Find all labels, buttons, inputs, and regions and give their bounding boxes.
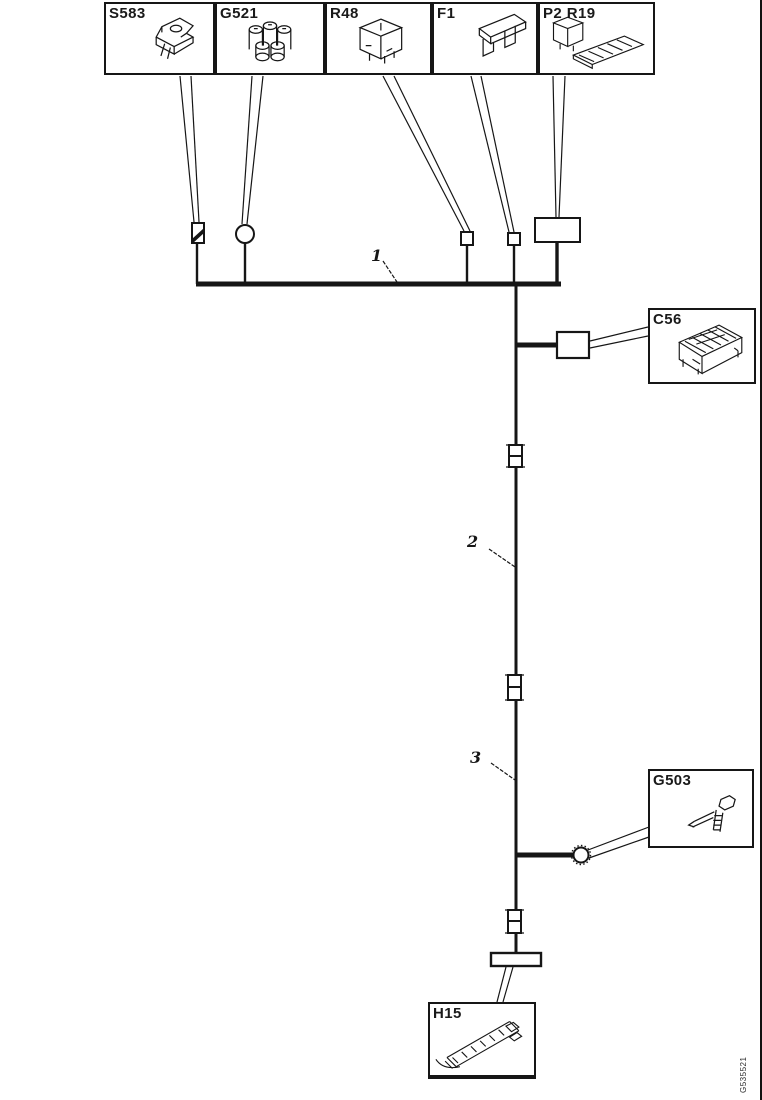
f1-illustration bbox=[434, 4, 536, 73]
component-box-f1: F1 bbox=[432, 2, 538, 75]
square-connector-symbol bbox=[461, 232, 473, 245]
segment-label-3: 3 bbox=[470, 748, 481, 767]
component-box-g521: G521 bbox=[215, 2, 325, 75]
segment-label-1: 1 bbox=[371, 246, 382, 265]
g521-illustration bbox=[217, 4, 323, 73]
p2r19-illustration bbox=[540, 4, 653, 73]
component-box-p2r19: P2 R19 bbox=[538, 2, 655, 75]
component-box-r48: R48 bbox=[325, 2, 432, 75]
h15-illustration bbox=[430, 1004, 534, 1075]
c56-illustration bbox=[650, 310, 754, 382]
g503-ring-terminal bbox=[574, 848, 589, 863]
component-box-g503: G503 bbox=[648, 769, 754, 848]
harness-location-diagram: S583 G521 R48 bbox=[0, 0, 762, 1100]
bottom-bar-connector bbox=[491, 953, 541, 966]
component-box-h15: H15 bbox=[428, 1002, 536, 1079]
square-connector-symbol bbox=[508, 233, 520, 245]
ring-connector-symbol bbox=[236, 225, 254, 243]
segment-label-2: 2 bbox=[467, 532, 478, 551]
block-connector-symbol bbox=[535, 218, 580, 242]
drawing-id: G535521 bbox=[739, 1057, 748, 1093]
r48-illustration bbox=[327, 4, 430, 73]
s583-illustration bbox=[106, 4, 213, 73]
component-box-c56: C56 bbox=[648, 308, 756, 384]
g503-illustration bbox=[650, 771, 752, 846]
component-box-s583: S583 bbox=[104, 2, 215, 75]
wiring-lines bbox=[0, 0, 762, 1100]
c56-junction-block bbox=[557, 332, 589, 358]
